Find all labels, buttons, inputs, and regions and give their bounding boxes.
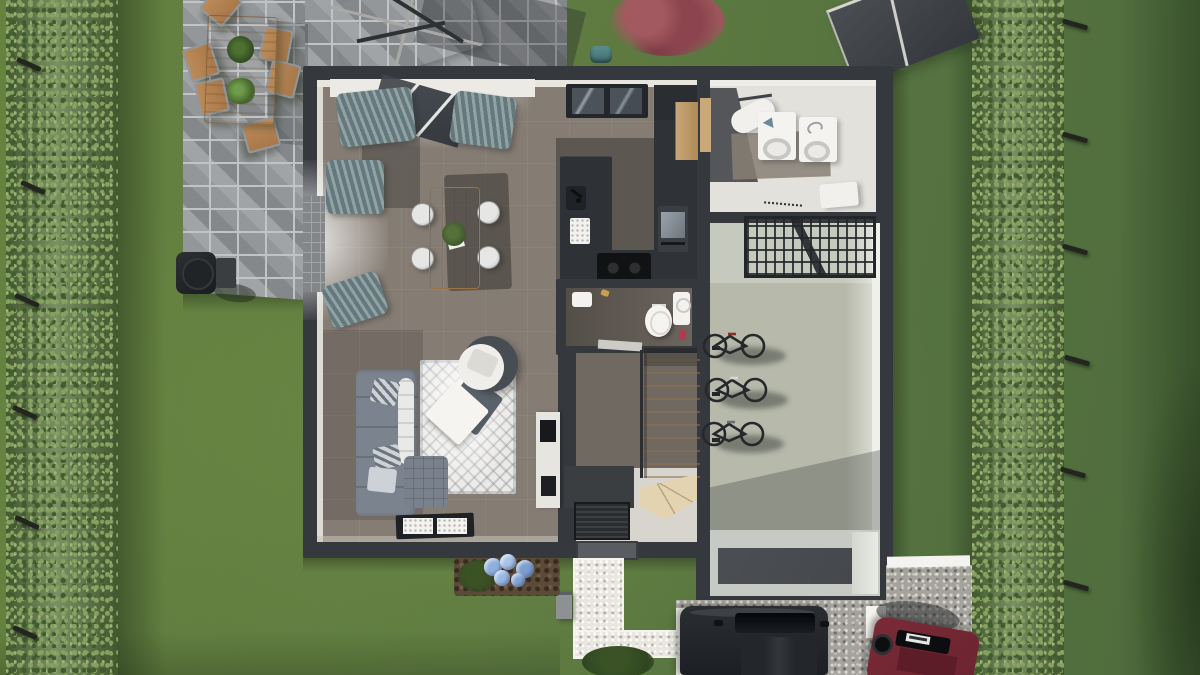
plate-text <box>909 635 927 641</box>
car-mirror <box>820 621 829 627</box>
dining-chair <box>477 201 500 224</box>
table-plant <box>227 78 255 104</box>
utility-meter-box <box>556 592 572 619</box>
washer-logo <box>763 115 778 128</box>
kitchen-tray <box>570 218 590 244</box>
kerb <box>887 555 970 567</box>
oven-glass <box>661 212 685 238</box>
oven-handle <box>661 242 685 245</box>
staircase <box>644 348 700 478</box>
bbq-lid <box>182 258 214 290</box>
dryer <box>799 117 837 162</box>
entry-doormat <box>574 502 630 540</box>
dryer-logo <box>805 120 824 137</box>
left-hedge <box>6 0 118 675</box>
laundry-basket <box>819 181 859 208</box>
oven <box>658 206 688 252</box>
washbasin <box>572 292 592 307</box>
curtain <box>449 90 518 150</box>
outdoor-dining-table <box>204 15 278 125</box>
stairs-top-shadow <box>644 348 697 366</box>
pouf <box>404 456 448 508</box>
doormat <box>437 518 467 534</box>
hose-reel <box>590 46 612 63</box>
utility-inner-wall <box>710 80 876 86</box>
south-bush <box>582 646 654 675</box>
sofa-pillow <box>367 467 397 494</box>
right-hedge <box>972 0 1064 675</box>
hydrangea-bloom <box>500 554 516 570</box>
sofa-back-cushions <box>398 378 414 464</box>
garage-door-floor <box>718 548 852 584</box>
red-car-wheel <box>872 634 893 655</box>
tree-shadow-corner <box>1130 360 1200 675</box>
west-window-glazing <box>303 196 325 292</box>
dining-plant <box>442 222 466 246</box>
ceiling-storage-rack <box>744 216 876 278</box>
skylight-pane <box>572 88 604 114</box>
garage-door-jamb <box>852 532 878 594</box>
dryer-drum <box>804 141 830 162</box>
house-shadow-east <box>893 70 911 610</box>
curtain <box>326 160 384 214</box>
hifi-speaker <box>541 476 556 496</box>
shed-roof-seam <box>888 0 908 66</box>
hydrangea-bloom <box>494 570 510 586</box>
doormat <box>403 518 433 534</box>
washer-drum <box>763 138 791 160</box>
washing-machine <box>758 112 796 160</box>
floor-plan-render <box>0 0 1200 675</box>
left-hedge-shadow <box>116 0 166 675</box>
curtain <box>335 86 416 148</box>
toilet-seat <box>650 311 671 335</box>
table-plant <box>227 36 254 63</box>
dining-chair <box>477 246 500 269</box>
red-bottle <box>679 330 686 340</box>
tall-wood-cabinet <box>675 102 698 160</box>
sofa-pillow <box>372 444 401 470</box>
skylight-pane <box>610 88 642 114</box>
hydrangea-bloom <box>511 573 525 587</box>
black-car-roof <box>741 637 817 675</box>
black-car-windshield <box>735 613 815 633</box>
bbq-side-table <box>216 258 236 288</box>
faucet-base <box>576 198 581 203</box>
hifi-speaker <box>540 420 556 442</box>
sink-bowl <box>676 298 691 313</box>
utility-door <box>700 98 711 152</box>
stair-handrail <box>640 350 643 478</box>
bikes-on-wall <box>700 330 800 480</box>
car-mirror <box>714 620 723 626</box>
